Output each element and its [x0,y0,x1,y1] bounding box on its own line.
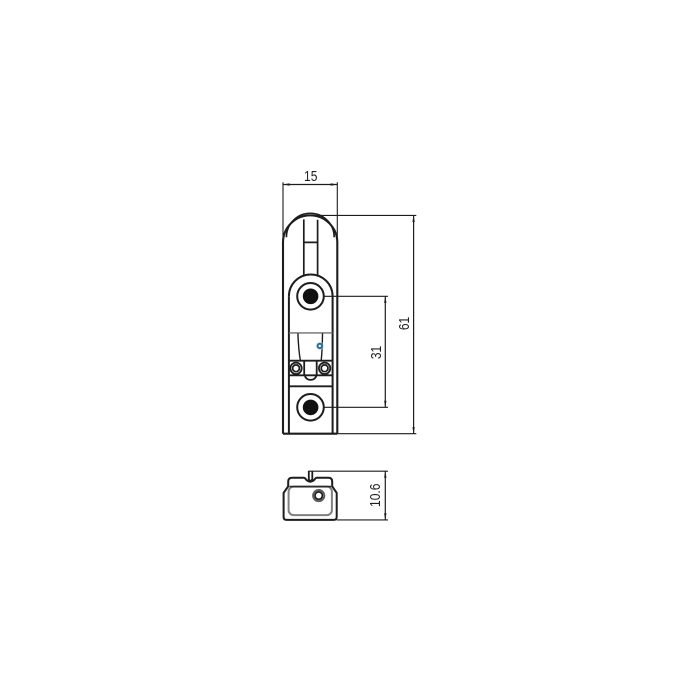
svg-text:15: 15 [304,168,317,185]
svg-text:31: 31 [368,346,385,359]
svg-text:10.6: 10.6 [367,484,384,507]
svg-text:61: 61 [396,317,413,330]
